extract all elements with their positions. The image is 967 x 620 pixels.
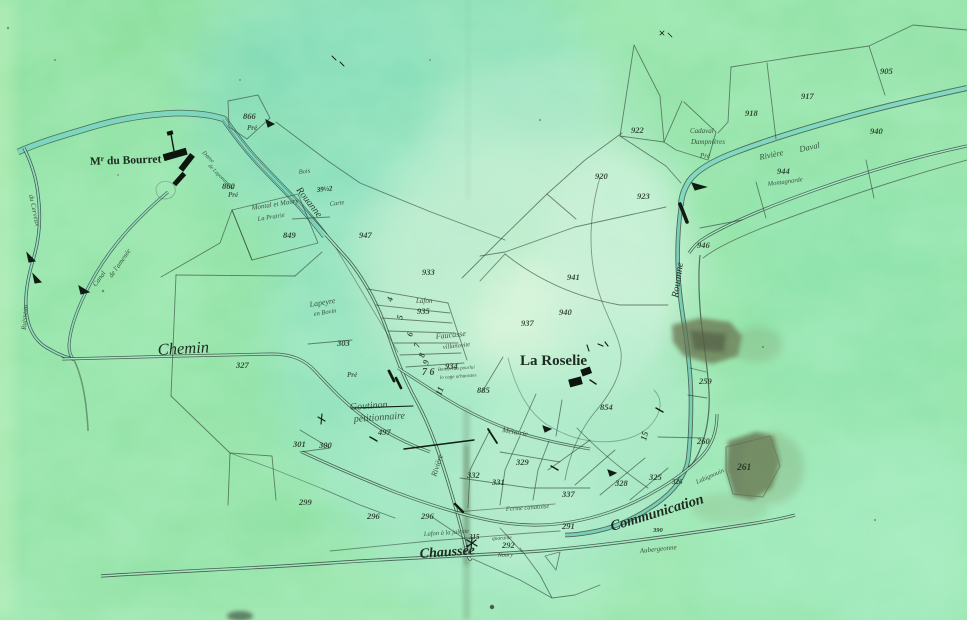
svg-text:885: 885 [477,385,491,395]
svg-text:300: 300 [318,440,333,450]
svg-text:947: 947 [359,230,373,240]
svg-text:935: 935 [417,306,431,316]
svg-text:917: 917 [801,91,815,101]
svg-text:497: 497 [377,427,392,437]
svg-text:944: 944 [777,166,790,176]
svg-text:301: 301 [292,439,306,449]
svg-text:261: 261 [736,463,751,473]
svg-text:296: 296 [420,511,435,521]
svg-text:325: 325 [648,472,663,482]
svg-text:Pré: Pré [228,191,239,199]
svg-text:331: 331 [491,477,505,487]
svg-text:940: 940 [559,307,573,317]
svg-text:La Roselie: La Roselie [520,353,587,369]
svg-text:934: 934 [445,361,458,371]
svg-text:905: 905 [880,66,894,76]
svg-text:Pré: Pré [347,371,358,379]
svg-text:920: 920 [595,171,609,181]
svg-text:941: 941 [567,272,580,282]
svg-text:329: 329 [515,457,530,467]
svg-text:866: 866 [243,111,257,121]
svg-text:315: 315 [468,533,480,541]
svg-text:860: 860 [222,181,236,191]
svg-text:946: 946 [697,240,711,250]
svg-text:337: 337 [561,489,576,499]
svg-text:259: 259 [698,376,713,386]
svg-text:923: 923 [637,191,651,201]
svg-text:Lafon: Lafon [415,297,433,305]
svg-text:Dampnières: Dampnières [690,138,725,146]
svg-text:299: 299 [298,497,313,507]
svg-text:327: 327 [235,360,250,370]
svg-text:303: 303 [336,338,351,348]
svg-text:933: 933 [422,267,436,277]
svg-text:260: 260 [696,436,711,446]
svg-text:Ruisseau: Ruisseau [20,304,29,331]
svg-text:922: 922 [631,125,645,135]
svg-text:332: 332 [466,470,481,480]
svg-text:292: 292 [501,540,516,550]
svg-text:Pré: Pré [699,152,711,160]
svg-text:390: 390 [652,527,664,534]
svg-text:Cadaval: Cadaval [690,127,714,135]
svg-text:849: 849 [283,230,297,240]
svg-text:854: 854 [600,402,613,412]
svg-text:918: 918 [745,108,759,118]
svg-text:Noury: Noury [497,552,514,559]
svg-text:Chemin: Chemin [157,337,209,359]
svg-text:326: 326 [671,478,683,486]
svg-text:291: 291 [561,521,575,531]
svg-text:Pré: Pré [247,124,258,132]
svg-text:940: 940 [870,126,884,136]
svg-text:937: 937 [521,318,535,328]
svg-text:328: 328 [614,478,629,488]
svg-text:7 6: 7 6 [422,367,435,378]
svg-text:296: 296 [366,511,381,521]
svg-text:Mr du Bourret: Mr du Bourret [90,152,162,168]
